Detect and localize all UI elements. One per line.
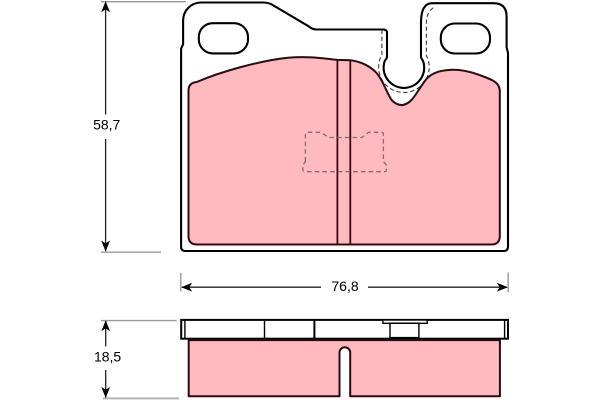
svg-text:76,8: 76,8 — [331, 278, 358, 294]
svg-text:58,7: 58,7 — [93, 117, 120, 133]
svg-text:18,5: 18,5 — [94, 348, 121, 364]
